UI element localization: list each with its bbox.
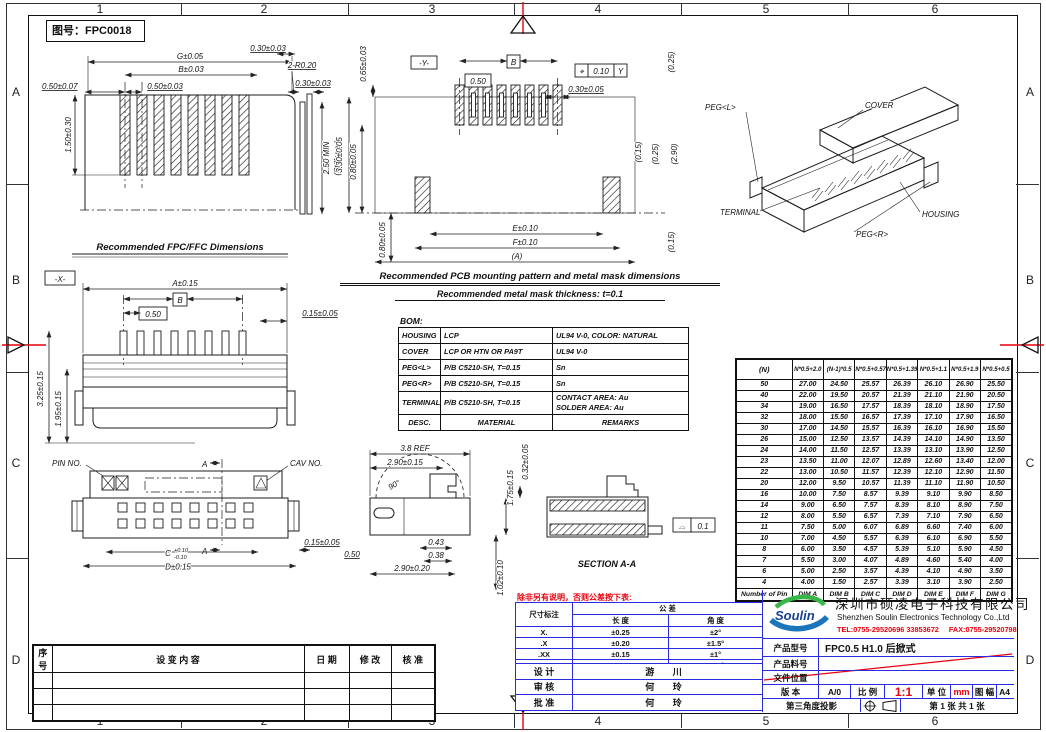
table-cell: (N-1)*0.5 (823, 359, 854, 380)
pcb-caption: Recommended PCB mounting pattern and met… (340, 271, 720, 286)
table-cell: X. (516, 627, 573, 638)
table-cell: 10.57 (855, 479, 886, 490)
table-cell: 14.50 (823, 424, 854, 435)
svg-text:0.32±0.05: 0.32±0.05 (521, 444, 530, 480)
table-cell: 25.50 (981, 380, 1012, 391)
table-row: PEG<L>P/B C5210-SH, T=0.15Sn (399, 360, 689, 376)
table-cell: 5.57 (855, 534, 886, 545)
table-cell (33, 673, 52, 689)
table-cell: 角 度 (669, 615, 763, 627)
table-cell: 公 差 (573, 603, 763, 615)
svg-text:(A): (A) (512, 252, 523, 261)
svg-text:0.50: 0.50 (470, 77, 486, 86)
table-cell: 4.07 (855, 556, 886, 567)
table-cell: 21.39 (886, 391, 917, 402)
table-row: 审 核何 玲 (516, 679, 763, 695)
svg-text:1.95±0.15: 1.95±0.15 (54, 391, 63, 427)
table-cell: 19.00 (792, 402, 823, 413)
table-cell: 8 (736, 545, 792, 556)
table-cell: 5.00 (823, 523, 854, 534)
table-cell: DESC. (399, 415, 441, 431)
table-cell: 4.10 (918, 567, 949, 578)
table-cell: 4.60 (918, 556, 949, 567)
table-cell: 7.50 (792, 523, 823, 534)
table-cell: 10.00 (792, 490, 823, 501)
table-cell: 设 计 (516, 664, 573, 680)
table-cell: 12.60 (918, 457, 949, 468)
table-cell: 8.50 (981, 490, 1012, 501)
table-cell: 7.50 (981, 501, 1012, 512)
table-cell: 8.90 (949, 501, 980, 512)
svg-text:PIN NO.: PIN NO. (52, 459, 82, 468)
svg-text:0.50: 0.50 (145, 310, 161, 319)
sheet-count: 第 1 张 共 1 张 (901, 699, 1013, 712)
table-cell: 24.50 (823, 380, 854, 391)
projection-symbols (863, 700, 899, 712)
table-cell: ±0.20 (573, 638, 669, 649)
table-cell: 12.90 (949, 468, 980, 479)
table-row: 2615.0012.5013.5714.3914.1014.9013.50 (736, 435, 1012, 446)
table-row: 批 准何 玲 (516, 695, 763, 711)
table-cell: 4.00 (981, 556, 1012, 567)
field-row-projection: 第三角度投影 第 1 张 共 1 张 (763, 698, 1014, 712)
table-cell: 23 (736, 457, 792, 468)
table-cell: 18.90 (949, 402, 980, 413)
table-cell: 16.39 (886, 424, 917, 435)
table-cell: COVER (399, 344, 441, 360)
table-row: PEG<R>P/B C5210-SH, T=0.15Sn (399, 376, 689, 392)
svg-text:C: C (165, 549, 171, 558)
table-cell: 20.57 (855, 391, 886, 402)
table-cell: ±1° (669, 649, 763, 660)
table-row: 2414.0011.5012.5713.3913.1013.9012.50 (736, 446, 1012, 457)
bottom-cavities (118, 503, 253, 528)
table-cell: 11.90 (949, 479, 980, 490)
svg-text:Y: Y (618, 67, 624, 76)
table-cell: 6.10 (918, 534, 949, 545)
svg-text:0.10: 0.10 (593, 67, 609, 76)
table-cell (391, 705, 435, 722)
table-cell: 何 玲 (573, 695, 763, 711)
table-cell (52, 705, 304, 722)
table-cell: 4.39 (886, 567, 917, 578)
svg-text:HOUSING: HOUSING (922, 210, 959, 219)
table-cell: 8.39 (886, 501, 917, 512)
company-tel: TEL:0755-29520696 33853672 (837, 625, 939, 634)
svg-text:B: B (177, 296, 183, 305)
view-fpc-ffc: G±0.05 B±0.03 0.50±0.07 0.50±0.03 0.30±0… (42, 44, 342, 257)
section-arrow-top: A (201, 460, 207, 469)
table-cell: 21.90 (949, 391, 980, 402)
svg-text:G±0.05: G±0.05 (177, 52, 204, 61)
bom-table: HOUSINGLCPUL94 V-0, COLOR: NATURALCOVERL… (398, 327, 689, 431)
table-cell: 17.00 (792, 424, 823, 435)
table-cell: 10.50 (981, 479, 1012, 490)
table-cell: ±2° (669, 627, 763, 638)
table-cell: HOUSING (399, 328, 441, 344)
table-row: 149.006.507.578.398.108.907.50 (736, 501, 1012, 512)
table-row: 尺寸标注 公 差 (516, 603, 763, 615)
table-row: 128.005.506.577.397.107.906.50 (736, 512, 1012, 523)
table-cell: 25.57 (855, 380, 886, 391)
svg-text:90°: 90° (387, 478, 403, 492)
table-cell: 6.07 (855, 523, 886, 534)
scale-value: 1:1 (885, 685, 923, 698)
table-cell: 4.50 (823, 534, 854, 545)
table-row: DESC.MATERIALREMARKS (399, 415, 689, 431)
table-cell (349, 689, 391, 705)
scale-label: 比 例 (851, 685, 885, 698)
table-cell: .XX (516, 649, 573, 660)
table-cell: 7.90 (949, 512, 980, 523)
table-row: .X±0.20±1.5° (516, 638, 763, 649)
table-cell: 5.90 (949, 545, 980, 556)
table-cell: 11.57 (855, 468, 886, 479)
table-cell: TERMINAL (399, 392, 441, 415)
svg-text:2.90±0.20: 2.90±0.20 (393, 564, 430, 573)
svg-text:Soulin: Soulin (775, 608, 815, 623)
table-cell: 7.40 (949, 523, 980, 534)
table-row: 117.505.006.076.896.607.406.00 (736, 523, 1012, 534)
model-value: FPC0.5 H1.0 后掀式 (819, 639, 1014, 656)
table-cell: 20 (736, 479, 792, 490)
table-cell: Sn (553, 376, 689, 392)
company-name-en: Shenzhen Soulin Electronics Technology C… (837, 613, 1015, 622)
table-cell: 核 准 (391, 645, 435, 673)
table-cell: UL94 V-0, COLOR: NATURAL (553, 328, 689, 344)
table-cell: 5.50 (981, 534, 1012, 545)
view-isometric: PEG<L> COVER TERMINAL HOUSING PEG<R> (705, 87, 959, 239)
svg-text:3.8 REF: 3.8 REF (400, 444, 430, 453)
svg-text:D±0.15: D±0.15 (165, 563, 191, 572)
table-cell (33, 705, 52, 722)
table-row: 2313.5011.0012.0712.8912.6013.4012.00 (736, 457, 1012, 468)
table-cell: 8.10 (918, 501, 949, 512)
sheet-size-value: A4 (997, 685, 1012, 698)
projection-label: 第三角度投影 (763, 699, 861, 712)
table-cell: 4.57 (855, 545, 886, 556)
table-cell: 16.50 (823, 402, 854, 413)
fpc-fingers (120, 95, 249, 175)
table-cell: 14 (736, 501, 792, 512)
table-row (33, 705, 435, 722)
table-cell: PEG<R> (399, 376, 441, 392)
datum-y: -Y- (419, 59, 429, 68)
table-row: .XX±0.15±1° (516, 649, 763, 660)
table-row: 44.001.502.573.393.103.902.50 (736, 578, 1012, 589)
table-cell: 批 准 (516, 695, 573, 711)
table-cell: 6.57 (855, 512, 886, 523)
table-cell: ±0.25 (573, 627, 669, 638)
unit-value: mm (951, 685, 973, 698)
pin1-marks (102, 476, 128, 490)
table-cell: 17.50 (981, 402, 1012, 413)
table-cell: 18.00 (792, 413, 823, 424)
table-cell: Sn (553, 360, 689, 376)
table-cell (391, 673, 435, 689)
table-cell: 3.57 (855, 567, 886, 578)
table-cell: 13.50 (981, 435, 1012, 446)
field-row-file: 文件位置 (763, 670, 1014, 684)
table-cell: 7.50 (823, 490, 854, 501)
svg-text:TERMINAL: TERMINAL (720, 208, 760, 217)
table-row: 107.004.505.576.396.106.905.50 (736, 534, 1012, 545)
svg-text:CAV NO.: CAV NO. (290, 459, 322, 468)
table-cell: 26.10 (918, 380, 949, 391)
table-cell: N*0.5+0.5 (981, 359, 1012, 380)
table-row: COVERLCP OR HTN OR PA9TUL94 V-0 (399, 344, 689, 360)
version-label: 版 本 (763, 685, 819, 698)
table-cell: 7 (736, 556, 792, 567)
table-cell: 13.00 (792, 468, 823, 479)
table-cell: 3.90 (949, 578, 980, 589)
table-cell: 4.00 (792, 578, 823, 589)
table-cell: 12.50 (981, 446, 1012, 457)
table-cell (52, 673, 304, 689)
svg-text:0.15±0.05: 0.15±0.05 (304, 538, 340, 547)
table-cell: 日 期 (304, 645, 349, 673)
table-cell: 17.57 (855, 402, 886, 413)
svg-text:COVER: COVER (865, 101, 894, 110)
table-cell: 11.10 (918, 479, 949, 490)
table-cell: 16.10 (918, 424, 949, 435)
table-cell: 6.50 (981, 512, 1012, 523)
table-cell: 32 (736, 413, 792, 424)
table-row: 75.503.004.074.894.605.404.00 (736, 556, 1012, 567)
table-cell (304, 673, 349, 689)
table-row (33, 689, 435, 705)
table-cell: 18.10 (918, 402, 949, 413)
part-value (819, 657, 1014, 670)
svg-text:1.50±0.30: 1.50±0.30 (64, 117, 73, 153)
table-cell: 4 (736, 578, 792, 589)
table-cell: 26.39 (886, 380, 917, 391)
svg-text:0.30±0.05: 0.30±0.05 (568, 85, 604, 94)
table-cell: 5.50 (792, 556, 823, 567)
svg-text:1.02±0.10: 1.02±0.10 (496, 560, 505, 596)
table-cell: 12.07 (855, 457, 886, 468)
table-cell: 12.39 (886, 468, 917, 479)
section-label: SECTION A-A (578, 559, 636, 569)
table-cell: LCP OR HTN OR PA9T (441, 344, 553, 360)
part-label: 产品料号 (763, 657, 819, 670)
table-row: X.±0.25±2° (516, 627, 763, 638)
table-cell: ±0.15 (573, 649, 669, 660)
table-row: 65.002.503.574.394.104.903.50 (736, 567, 1012, 578)
table-cell: 9.00 (792, 501, 823, 512)
svg-text:0.65±0.03: 0.65±0.03 (359, 46, 368, 82)
table-row: 设 计游 川 (516, 664, 763, 680)
table-cell: 3.00 (823, 556, 854, 567)
table-cell: 何 玲 (573, 679, 763, 695)
table-row: 3017.0014.5015.5716.3916.1016.9015.50 (736, 424, 1012, 435)
table-cell: 12.00 (981, 457, 1012, 468)
table-cell: ±1.5° (669, 638, 763, 649)
table-cell: 5.39 (886, 545, 917, 556)
table-cell: 12.00 (792, 479, 823, 490)
table-cell: 6.00 (981, 523, 1012, 534)
table-cell: 3.50 (823, 545, 854, 556)
table-cell (52, 689, 304, 705)
table-cell: LCP (441, 328, 553, 344)
table-cell: 4.50 (981, 545, 1012, 556)
table-cell: 16.50 (981, 413, 1012, 424)
table-cell: 设 变 内 容 (52, 645, 304, 673)
table-cell: 3.10 (918, 578, 949, 589)
table-cell: 15.50 (981, 424, 1012, 435)
table-cell (304, 689, 349, 705)
svg-text:3.25±0.15: 3.25±0.15 (36, 371, 45, 407)
svg-text:PEG<R>: PEG<R> (856, 230, 888, 239)
svg-text:F±0.10: F±0.10 (513, 238, 538, 247)
company-fax: FAX:0755-29520798 (949, 625, 1017, 634)
table-cell: UL94 V-0 (553, 344, 689, 360)
pcb-pads (455, 85, 562, 125)
svg-text:0.1: 0.1 (697, 522, 708, 531)
table-cell: 1.50 (823, 578, 854, 589)
table-cell: 9.39 (886, 490, 917, 501)
view-bottom: PIN NO. CAV NO. (52, 459, 360, 572)
bom-label: BOM: (400, 316, 423, 326)
svg-text:E±0.10: E±0.10 (512, 224, 538, 233)
table-cell: 11 (736, 523, 792, 534)
table-cell: 5.10 (918, 545, 949, 556)
table-cell: 11.50 (981, 468, 1012, 479)
table-cell: 5.50 (823, 512, 854, 523)
third-angle-projection-icon (861, 699, 901, 712)
table-cell: 13.40 (949, 457, 980, 468)
table-cell: 尺寸标注 (516, 603, 573, 627)
table-cell: 6.00 (792, 545, 823, 556)
table-row: 86.003.504.575.395.105.904.50 (736, 545, 1012, 556)
table-cell: 6.90 (949, 534, 980, 545)
table-cell: 2.50 (981, 578, 1012, 589)
svg-text:0.43: 0.43 (428, 538, 444, 547)
svg-text:0.30±0.03: 0.30±0.03 (295, 79, 331, 88)
svg-text:(0.25): (0.25) (667, 51, 676, 72)
svg-text:0.50±0.03: 0.50±0.03 (147, 82, 183, 91)
table-cell: 3.50 (981, 567, 1012, 578)
table-cell: 14.90 (949, 435, 980, 446)
table-cell: 7.39 (886, 512, 917, 523)
svg-text:B±0.03: B±0.03 (178, 65, 204, 74)
table-cell (391, 689, 435, 705)
table-cell: 4.89 (886, 556, 917, 567)
soulin-logo-icon: Soulin (766, 593, 830, 637)
table-cell: 22.00 (792, 391, 823, 402)
field-row-part: 产品料号 (763, 656, 1014, 670)
svg-text:2-R0.20: 2-R0.20 (287, 61, 317, 70)
table-cell: 16 (736, 490, 792, 501)
table-cell: 11.50 (823, 446, 854, 457)
model-label: 产品型号 (763, 639, 819, 656)
table-cell: .X (516, 638, 573, 649)
svg-text:0.15±0.05: 0.15±0.05 (302, 309, 338, 318)
table-cell: 17.90 (949, 413, 980, 424)
table-cell: 13.50 (792, 457, 823, 468)
table-cell: P/B C5210-SH, T=0.15 (441, 360, 553, 376)
table-row: 3218.0015.5016.5717.3917.1017.9016.50 (736, 413, 1012, 424)
table-cell: 序 号 (33, 645, 52, 673)
table-cell: 40 (736, 391, 792, 402)
file-label: 文件位置 (763, 671, 819, 684)
svg-text:(0.15): (0.15) (667, 231, 676, 252)
table-row: 2213.0010.5011.5712.3912.1012.9011.50 (736, 468, 1012, 479)
table-cell (349, 705, 391, 722)
table-cell: 长 度 (573, 615, 669, 627)
svg-text:0.80±0.05: 0.80±0.05 (349, 144, 358, 180)
table-cell: 24 (736, 446, 792, 457)
table-cell: 12.10 (918, 468, 949, 479)
table-cell: 13.10 (918, 446, 949, 457)
table-cell: 13.90 (949, 446, 980, 457)
svg-text:2.50 MIN: 2.50 MIN (322, 142, 331, 176)
revision-table: 序 号设 变 内 容日 期修 改核 准 (32, 644, 436, 722)
svg-text:A±0.15: A±0.15 (171, 279, 198, 288)
table-cell: PEG<L> (399, 360, 441, 376)
table-cell: REMARKS (553, 415, 689, 431)
table-cell: 12.50 (823, 435, 854, 446)
table-cell: 12 (736, 512, 792, 523)
fpc-caption: Recommended FPC/FFC Dimensions (96, 242, 263, 253)
title-block: Soulin 深圳市硕凌电子科技有限公司 Shenzhen Soulin Ele… (762, 590, 1013, 712)
table-cell: N*0.5+1.9 (949, 359, 980, 380)
field-row-model: 产品型号 FPC0.5 H1.0 后掀式 (763, 638, 1014, 656)
svg-text:+0.10: +0.10 (174, 548, 189, 554)
version-value: A/0 (819, 685, 851, 698)
table-cell: 8.57 (855, 490, 886, 501)
svg-text:(0.15): (0.15) (634, 141, 643, 162)
table-cell (349, 673, 391, 689)
svg-text:B: B (511, 58, 517, 67)
table-cell: 30 (736, 424, 792, 435)
table-cell: 4.90 (949, 567, 980, 578)
table-cell: 20.50 (981, 391, 1012, 402)
table-row: 5027.0024.5025.5726.3926.1026.9025.50 (736, 380, 1012, 391)
section-arrow-bottom: A (201, 547, 207, 556)
table-cell: CONTACT AREA: AuSOLDER AREA: Au (553, 392, 689, 415)
table-cell: 12.57 (855, 446, 886, 457)
svg-text:0.38: 0.38 (428, 551, 444, 560)
table-cell: 5.00 (792, 567, 823, 578)
svg-text:(0.25): (0.25) (651, 143, 660, 164)
table-cell: 6.60 (918, 523, 949, 534)
table-cell (33, 689, 52, 705)
table-cell: 14.10 (918, 435, 949, 446)
table-cell: 16.90 (949, 424, 980, 435)
table-cell: (N) (736, 359, 792, 380)
table-cell: P/B C5210-SH, T=0.15 (441, 392, 553, 415)
table-cell (304, 705, 349, 722)
pin-dimension-table: (N)N*0.5+2.0(N-1)*0.5N*0.5+0.57N*0.5+1.3… (735, 358, 1013, 602)
engineering-drawing-page: 1 2 3 4 5 6 1 2 3 4 5 6 A B C D A B C D … (0, 0, 1046, 732)
table-cell: 6.50 (823, 501, 854, 512)
table-row (33, 673, 435, 689)
table-cell: 50 (736, 380, 792, 391)
table-cell: 9.50 (823, 479, 854, 490)
table-cell: 6.39 (886, 534, 917, 545)
table-cell: 11.39 (886, 479, 917, 490)
table-cell: 3.39 (886, 578, 917, 589)
svg-text:1.75±0.15: 1.75±0.15 (506, 470, 515, 506)
svg-text:0.80±0.05: 0.80±0.05 (378, 222, 387, 258)
table-cell: 7.57 (855, 501, 886, 512)
table-cell: 11.00 (823, 457, 854, 468)
svg-text:0.50: 0.50 (344, 550, 360, 559)
table-cell: 26.90 (949, 380, 980, 391)
table-cell: 9.10 (918, 490, 949, 501)
table-cell: 34 (736, 402, 792, 413)
